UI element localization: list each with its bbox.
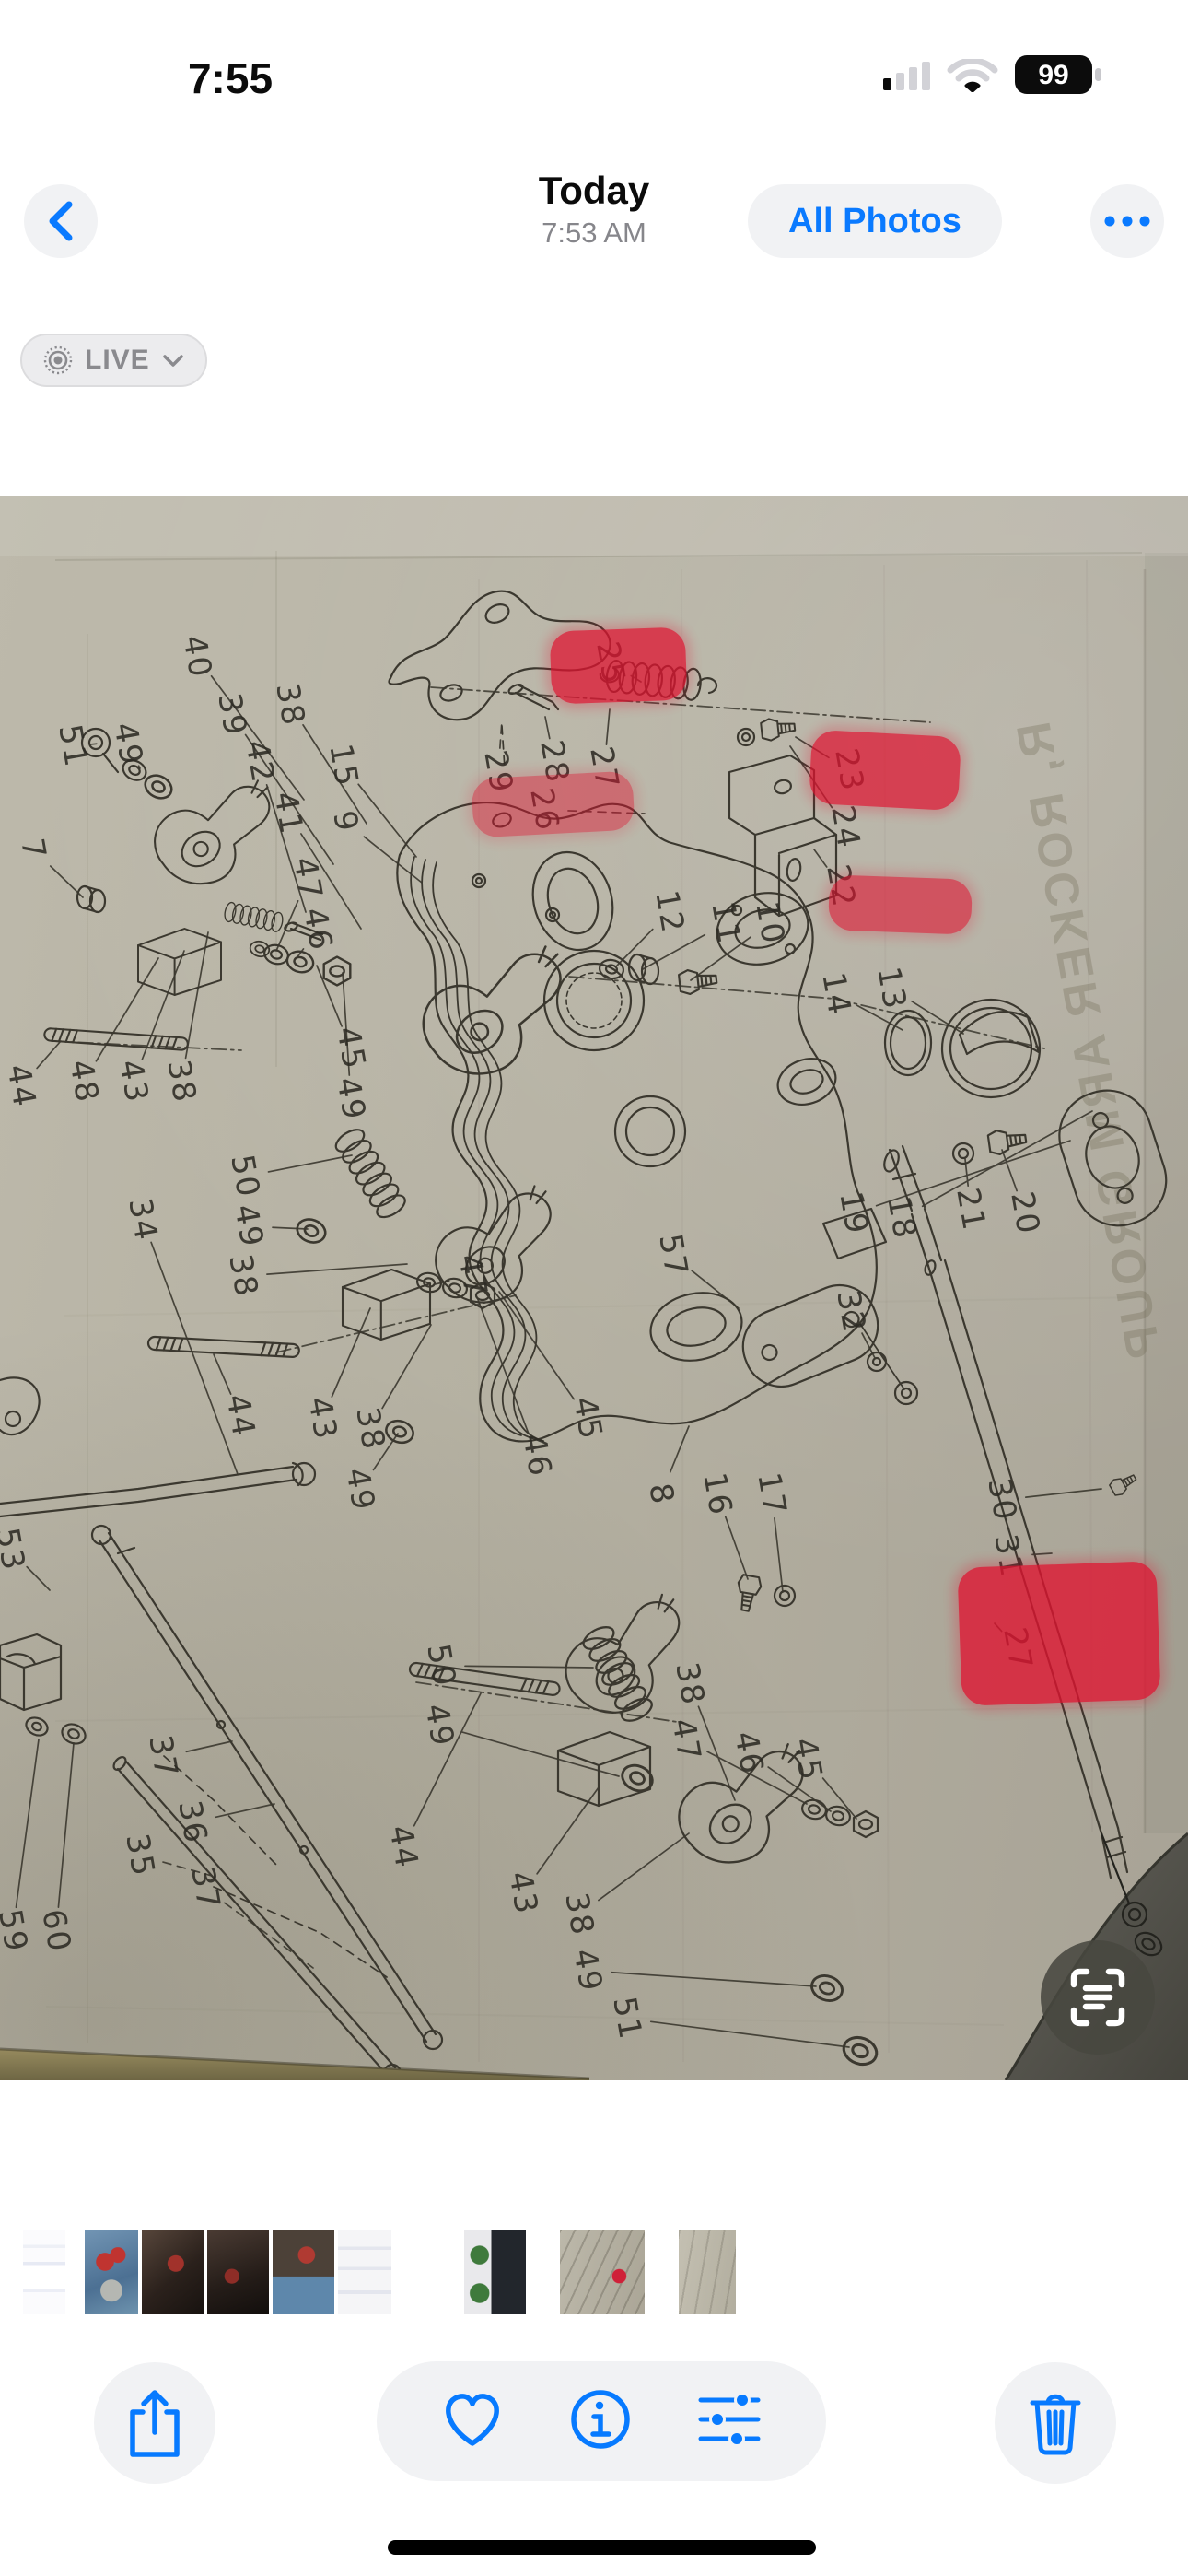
adjust-sliders-icon [693,2386,765,2453]
actions-pill [377,2361,826,2481]
chevron-down-icon [161,353,185,368]
page-title: Today [410,168,778,214]
highlighter-marks-layer [0,496,1188,2080]
info-button[interactable] [567,2386,634,2457]
thumbnail-motorcycle-3[interactable] [273,2230,334,2314]
trash-icon [1021,2386,1089,2460]
live-photo-icon [42,345,74,376]
thumbnail-parts-on-blue[interactable] [85,2230,138,2314]
all-photos-button[interactable]: All Photos [748,184,1002,258]
photo-view[interactable]: R, ROCKER ARM GROUP [0,496,1188,2080]
svg-text:99: 99 [1038,60,1068,90]
heart-icon [437,2387,507,2452]
back-button[interactable] [24,184,98,258]
battery-icon: 99 [1015,55,1103,96]
status-time: 7:55 [138,53,322,103]
wifi-icon [947,59,998,92]
live-badge-label: LIVE [85,345,150,376]
delete-button[interactable] [995,2362,1116,2484]
info-icon [567,2386,634,2453]
status-bar: 7:55 99 [0,0,1188,129]
thumbnail-motorcycle-1[interactable] [142,2230,204,2314]
thumbnail-springs-screenshot[interactable] [464,2230,526,2314]
share-button[interactable] [94,2362,215,2484]
more-button[interactable] [1090,184,1164,258]
thumbnail-motorcycle-2[interactable] [207,2230,269,2314]
thumbnail-current-diagram-selected[interactable] [560,2230,645,2314]
thumbnail-kitchen[interactable] [399,2230,460,2314]
photos-app-screen: { "status_bar": { "time": "7:55", "batte… [0,0,1188,2576]
thumbnail-web-screenshot[interactable] [23,2230,65,2314]
share-icon [121,2384,189,2462]
favorite-button[interactable] [437,2387,507,2456]
red-highlight-mark [471,770,635,837]
thumbnail-strip[interactable] [0,2230,1188,2314]
red-highlight-mark [550,626,688,704]
red-highlight-mark [828,874,973,934]
thumbnail-diagram-2[interactable] [679,2230,736,2314]
ellipsis-icon [1101,214,1153,228]
cellular-signal-icon [883,62,930,90]
live-text-scan-icon [1065,1964,1131,2031]
chevron-left-icon [45,199,76,243]
adjust-button[interactable] [693,2386,765,2457]
live-text-button[interactable] [1041,1940,1155,2055]
red-highlight-mark [957,1561,1160,1705]
home-indicator[interactable] [388,2540,816,2555]
page-subtitle: 7:53 AM [410,214,778,252]
red-highlight-mark [809,730,961,811]
live-photo-badge[interactable]: LIVE [20,334,207,387]
thumbnail-document-screenshot[interactable] [338,2230,391,2314]
title-block: Today 7:53 AM [410,168,778,252]
